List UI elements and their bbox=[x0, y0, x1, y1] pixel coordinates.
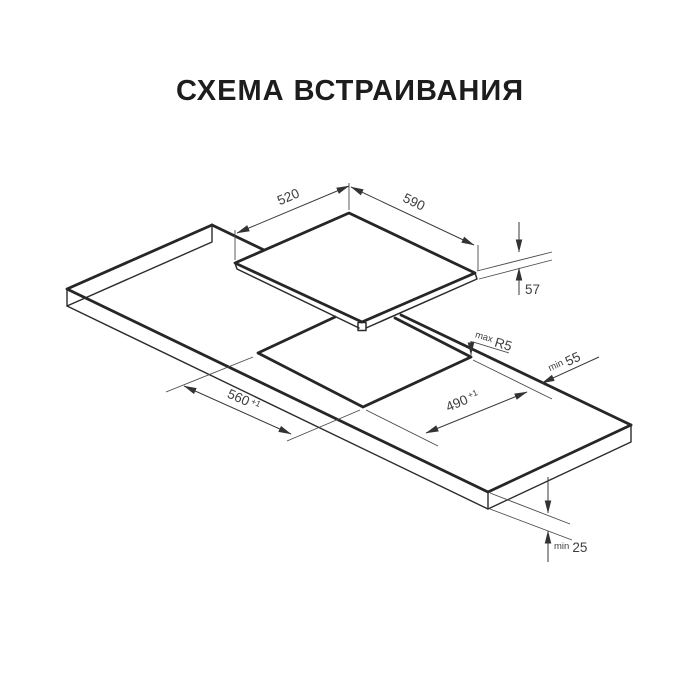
dim-cutout-length-label: 560+1 bbox=[225, 386, 263, 414]
dim-worktop-thickness-label: min25 bbox=[554, 540, 587, 555]
hob-body-right-edge bbox=[366, 273, 477, 328]
dimension-cutout-length: 560+1 bbox=[166, 357, 360, 441]
dimension-hob-height: 57 bbox=[477, 222, 552, 297]
dim-cutout-width-value: 490 bbox=[444, 392, 471, 415]
dim-cutout-width-tolerance: +1 bbox=[466, 387, 479, 400]
dim-worktop-thickness-value: 25 bbox=[572, 540, 587, 555]
dim-hob-width-label: 520 bbox=[275, 186, 302, 209]
hob-foot bbox=[358, 323, 366, 331]
dimension-rear-clearance: min55 bbox=[542, 349, 599, 383]
countertop-front-bottom-edge bbox=[67, 306, 488, 509]
countertop-right-face bbox=[488, 425, 631, 509]
countertop bbox=[67, 225, 631, 509]
hob bbox=[235, 213, 477, 331]
dim-rear-clearance-prefix: min bbox=[547, 358, 566, 374]
dim-hob-depth-label: 590 bbox=[401, 190, 428, 213]
countertop-left-face bbox=[67, 225, 212, 306]
dim-hob-height-label: 57 bbox=[525, 282, 540, 297]
installation-diagram: 520 590 57 maxR5 min55 490+1 560+1 bbox=[0, 0, 700, 700]
dim-worktop-thickness-prefix: min bbox=[554, 541, 569, 552]
dim-cutout-length-tolerance: +1 bbox=[250, 396, 263, 409]
dimension-worktop-thickness: min25 bbox=[490, 477, 587, 562]
dimension-hob-depth: 590 bbox=[351, 187, 478, 271]
hob-glass-panel bbox=[235, 213, 475, 322]
countertop-outline bbox=[67, 225, 631, 492]
dim-corner-radius-label: maxR5 bbox=[473, 328, 514, 354]
dim-cutout-width-label: 490+1 bbox=[444, 387, 482, 414]
dim-cutout-length-value: 560 bbox=[225, 386, 252, 409]
dim-corner-radius-value: R5 bbox=[493, 335, 514, 354]
countertop-back-edge bbox=[212, 225, 631, 425]
